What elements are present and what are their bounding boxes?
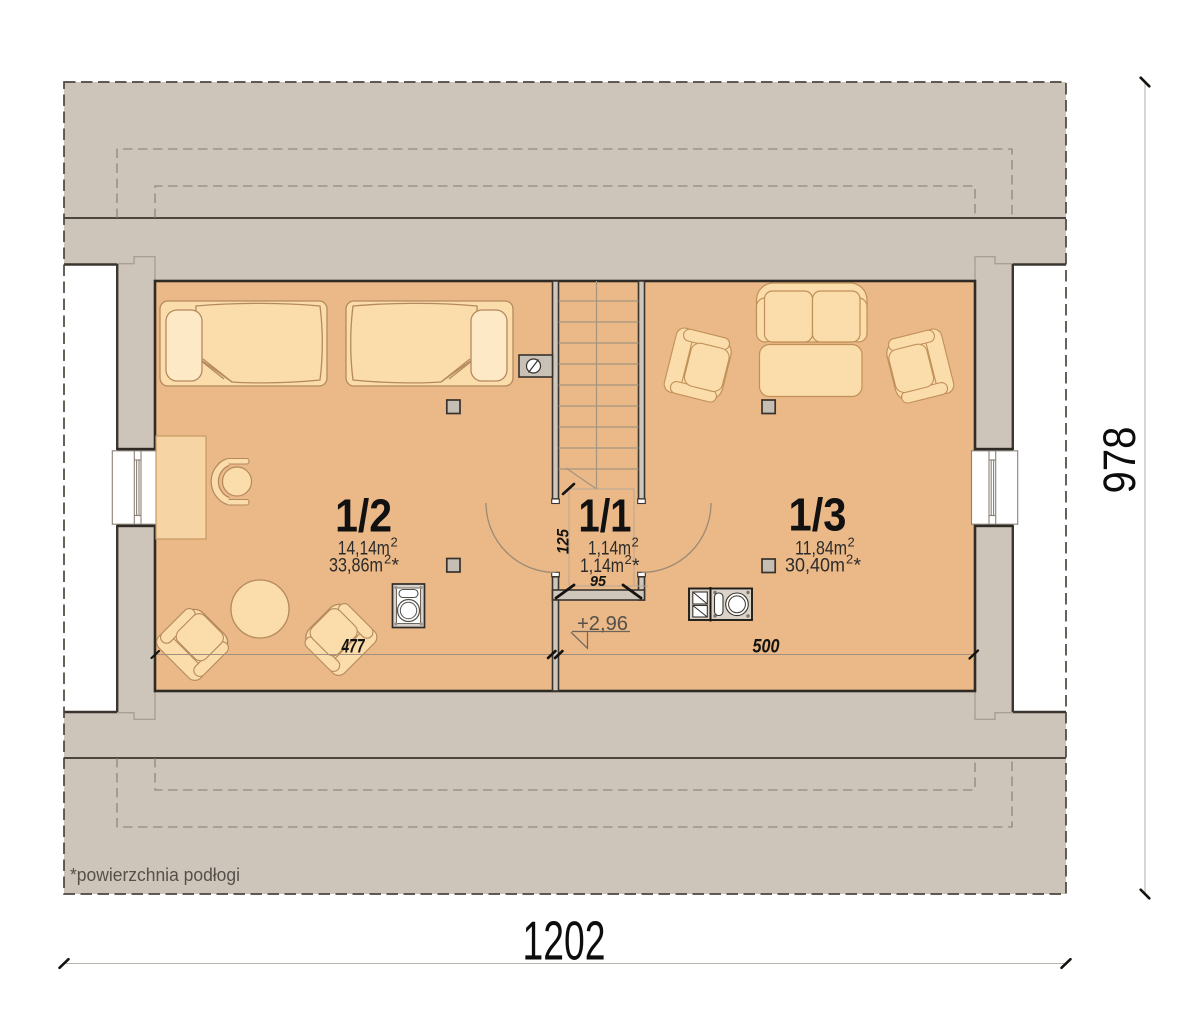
svg-text:125: 125 (555, 528, 573, 554)
svg-text:2: 2 (391, 535, 398, 550)
svg-text:30,40m: 30,40m (785, 555, 845, 577)
svg-text:1/3: 1/3 (789, 489, 847, 541)
svg-text:*: * (854, 555, 862, 577)
svg-text:2: 2 (384, 552, 391, 567)
svg-text:1/1: 1/1 (579, 490, 632, 542)
svg-text:2: 2 (625, 552, 632, 567)
svg-text:1/2: 1/2 (335, 490, 392, 542)
svg-text:+2,96: +2,96 (577, 612, 628, 635)
svg-text:*: * (392, 555, 400, 577)
svg-text:1202: 1202 (523, 910, 606, 972)
svg-text:33,86m: 33,86m (329, 555, 383, 577)
svg-text:978: 978 (1094, 427, 1145, 494)
svg-text:2: 2 (632, 535, 639, 550)
svg-text:*powierzchnia podłogi: *powierzchnia podłogi (70, 864, 240, 885)
svg-text:500: 500 (753, 636, 780, 658)
svg-text:477: 477 (341, 636, 366, 658)
svg-text:*: * (632, 555, 640, 577)
svg-text:2: 2 (848, 535, 855, 550)
svg-text:2: 2 (846, 552, 853, 567)
svg-text:95: 95 (590, 574, 607, 590)
